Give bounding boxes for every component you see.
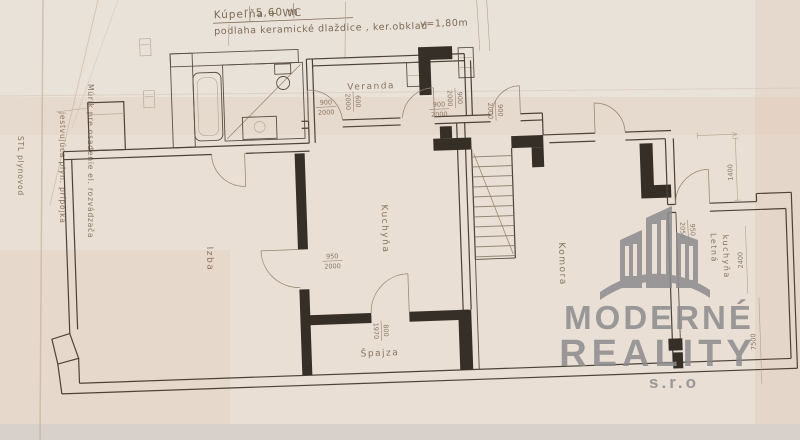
watermark-line1: MODERNÉ [564, 299, 754, 336]
room-label-komora: Komora [556, 242, 568, 286]
watermark-line2: REALITY [559, 333, 757, 375]
dim-value: 2000 [344, 93, 353, 110]
tiling-height-note: v=1,80m [420, 18, 468, 30]
room-label-veranda: Veranda [347, 81, 395, 93]
room-label-letna-1: Letná [709, 233, 719, 263]
watermark-line3: s.r.o [649, 373, 699, 392]
dim-value: 800 [382, 324, 390, 337]
dim-value: 900 [496, 104, 504, 117]
dim-value: 950 [688, 223, 696, 236]
room-label-izba: Izba [204, 247, 215, 272]
scanned-floorplan: Kúpeľňa + WC 5,60 m podlaha keramické dl… [0, 0, 800, 440]
floorplan-drawing: Kúpeľňa + WC 5,60 m podlaha keramické dl… [0, 0, 800, 440]
dim-value: 2000 [324, 262, 341, 271]
room-label-letna-2: kuchyňa [721, 234, 733, 278]
dim-value: 950 [326, 252, 339, 260]
dim-2400: 2400 [736, 252, 745, 269]
dim-value: 2000 [431, 110, 448, 119]
bathroom-area-value: 5,60 m [256, 6, 299, 19]
stl-gas-annotation: STL plynovod [16, 136, 25, 196]
dim-value: 900 [456, 91, 464, 104]
dim-value: 900 [320, 98, 333, 106]
dim-value: 2000 [486, 102, 495, 119]
dim-value: 1970 [372, 323, 381, 340]
dim-value: 600 [354, 95, 362, 108]
dim-value: 2000 [318, 108, 335, 117]
room-label-kuchyna: Kuchyňa [378, 204, 391, 253]
dim-value: 2000 [445, 90, 454, 107]
dim-value: 900 [433, 100, 446, 108]
dim-1400: 1400 [726, 164, 735, 181]
